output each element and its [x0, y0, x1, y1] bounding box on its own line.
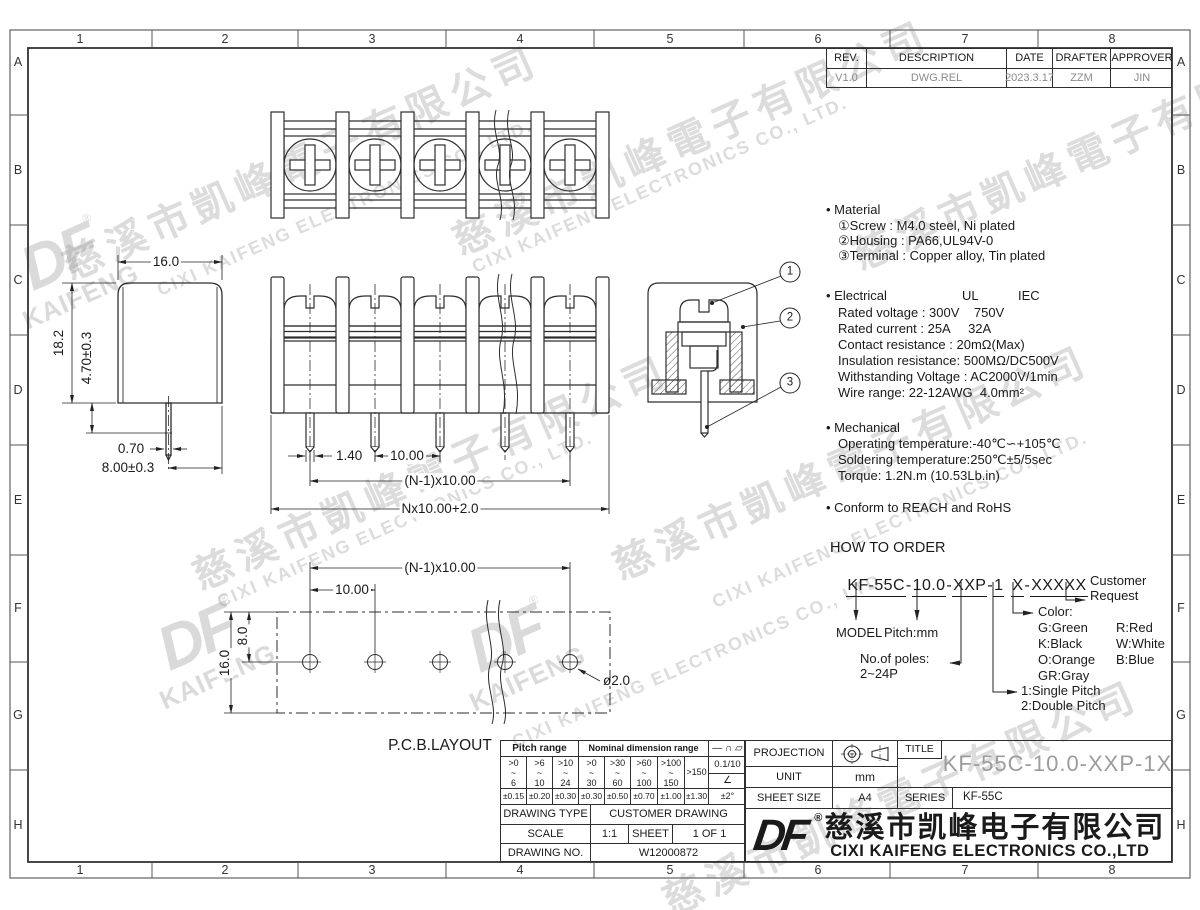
- order-label-double-pitch: 2:Double Pitch: [1021, 699, 1106, 714]
- dim-side-pin-length: 8.00±0.3: [102, 460, 154, 476]
- tolerance-value: ±0.30: [579, 789, 605, 805]
- tolerance-value: ±0.15: [501, 789, 527, 805]
- tolerance-angle-symbol: ∠: [709, 774, 746, 789]
- company-logo: DF: [751, 814, 808, 858]
- material-line: ③Terminal : Copper alloy, Tin plated: [838, 249, 1045, 264]
- tolerance-header-nominal: Nominal dimension range: [579, 741, 709, 757]
- tolerance-header-symbols: — ∩ ▱: [709, 741, 746, 757]
- revision-value: 2023.3.17: [1007, 69, 1053, 87]
- electrical-line: Insulation resistance: 500MΩ/DC500V: [838, 354, 1059, 369]
- grid-col-label: 4: [517, 32, 524, 46]
- dim-pcb-height: 16.0: [217, 648, 233, 678]
- drawing-no-label: DRAWING NO.: [501, 844, 591, 862]
- electrical-line: Rated current : 25A 32A: [838, 322, 991, 337]
- order-color-option: G:Green: [1038, 621, 1088, 636]
- grid-row-label: B: [14, 163, 22, 177]
- tolerance-flatness: 0.1/10: [709, 757, 746, 774]
- material-line: ①Screw : M4.0 steel, Ni plated: [838, 219, 1015, 234]
- grid-col-label: 2: [222, 863, 229, 877]
- projection-label: PROJECTION: [746, 741, 833, 767]
- grid-col-label: 8: [1109, 32, 1116, 46]
- dim-side-width: 16.0: [151, 254, 181, 270]
- grid-col-label: 1: [77, 32, 84, 46]
- dim-side-height: 18.2: [51, 330, 67, 356]
- tolerance-value: ±0.30: [553, 789, 579, 805]
- grid-col-label: 7: [962, 32, 969, 46]
- conform-note: • Conform to REACH and RoHS: [826, 501, 1011, 516]
- revision-header: APPROVER: [1111, 49, 1173, 69]
- electrical-line: Contact resistance : 20mΩ(Max): [838, 338, 1025, 353]
- order-label-poles-range: 2~24P: [860, 667, 898, 682]
- grid-row-label: G: [1176, 708, 1186, 722]
- grid-col-label: 3: [369, 32, 376, 46]
- company-name-en: CIXI KAIFENG ELECTRONICS CO.,LTD: [814, 843, 1165, 860]
- order-color-option: GR:Gray: [1038, 669, 1089, 684]
- unit-value: mm: [833, 767, 898, 788]
- revision-value: V1.0: [827, 69, 867, 87]
- tolerance-range: >6 ~ 10: [527, 757, 553, 789]
- tolerance-value: ±2°: [709, 789, 746, 805]
- projection-symbol-icon: [836, 743, 894, 765]
- tolerance-range: >100 ~ 150: [658, 757, 685, 789]
- revision-value: ZZM: [1053, 69, 1111, 87]
- drawing-type-label: DRAWING TYPE: [501, 805, 591, 825]
- electrical-title: • Electrical: [826, 289, 887, 304]
- drawing-title: KF-55C-10.0-XXP-1X: [943, 753, 1173, 775]
- mechanical-line: Torque: 1.2N.m (10.53Lb.in): [838, 469, 1000, 484]
- tolerance-range: >60 ~ 100: [631, 757, 658, 789]
- grid-col-label: 5: [667, 863, 674, 877]
- electrical-col-iec: IEC: [1018, 289, 1040, 304]
- revision-header: REV.: [827, 49, 867, 69]
- scale-label: SCALE: [501, 825, 591, 844]
- grid-col-label: 8: [1109, 863, 1116, 877]
- dim-pcb-hole: ø2.0: [603, 673, 630, 689]
- order-color-option: W:White: [1116, 637, 1165, 652]
- grid-row-label: A: [14, 55, 22, 69]
- grid-row-label: D: [13, 383, 22, 397]
- material-line: ②Housing : PA66,UL94V-0: [838, 234, 993, 249]
- revision-header: DATE: [1007, 49, 1053, 69]
- grid-row-label: C: [13, 273, 22, 287]
- grid-row-label: A: [1177, 55, 1185, 69]
- tolerance-range: >10 ~ 24: [553, 757, 579, 789]
- order-label-request: Request: [1090, 589, 1138, 604]
- title-value: KF-55C-10.0-XXP-1X: [942, 741, 1173, 788]
- tolerance-range: >0 ~ 30: [579, 757, 605, 789]
- title-label: TITLE: [898, 741, 942, 759]
- order-label-customer: Customer: [1090, 574, 1146, 589]
- grid-col-label: 2: [222, 32, 229, 46]
- tolerance-value: ±1.00: [658, 789, 685, 805]
- grid-row-label: B: [1177, 163, 1185, 177]
- electrical-col-ul: UL: [962, 289, 979, 304]
- grid-row-label: C: [1176, 273, 1185, 287]
- scale-value: 1:1: [591, 825, 629, 844]
- order-label-pitch: Pitch:mm: [884, 626, 938, 641]
- tolerance-table: Pitch range Nominal dimension range — ∩ …: [500, 740, 745, 862]
- drawing-type-value: CUSTOMER DRAWING: [591, 805, 746, 825]
- revision-table: REV. DESCRIPTION DATE DRAFTER APPROVER V…: [826, 48, 1172, 88]
- callout-2: 2: [787, 311, 793, 324]
- order-code-model: KF-55C: [846, 577, 906, 597]
- grid-col-label: 6: [815, 863, 822, 877]
- order-color-option: R:Red: [1116, 621, 1153, 636]
- company-name-cn: 慈溪市凯峰电子有限公司: [824, 812, 1165, 844]
- order-code-poles: XXP: [952, 577, 987, 597]
- grid-col-label: 1: [77, 863, 84, 877]
- dim-front-pin-width: 1.40: [336, 448, 362, 464]
- series-value: KF-55C: [953, 788, 1173, 809]
- revision-header: DRAFTER: [1053, 49, 1111, 69]
- dim-front-span: (N-1)x10.00: [402, 473, 477, 489]
- title-filler: [898, 759, 942, 788]
- grid-row-label: E: [1177, 493, 1185, 507]
- dim-side-pin-offset: 4.70±0.3: [79, 332, 95, 384]
- sheet-label: SHEET: [629, 825, 673, 844]
- dim-front-pitch: 10.00: [388, 448, 426, 464]
- callout-3: 3: [787, 376, 793, 389]
- grid-col-label: 4: [517, 863, 524, 877]
- sheet-value: 1 OF 1: [673, 825, 746, 844]
- tolerance-range: >30 ~ 60: [605, 757, 631, 789]
- grid-row-label: H: [13, 818, 22, 832]
- projection-symbol-cell: [833, 741, 898, 767]
- sheet-size-value: A4: [833, 788, 898, 809]
- dim-pcb-pitch: 10.00: [333, 582, 371, 598]
- grid-col-label: 3: [369, 863, 376, 877]
- order-color-option: B:Blue: [1116, 653, 1154, 668]
- tolerance-value: ±0.70: [631, 789, 658, 805]
- revision-value: JIN: [1111, 69, 1173, 87]
- electrical-line: Wire range: 22-12AWG 4.0mm²: [838, 386, 1024, 401]
- revision-value: DWG.REL: [867, 69, 1007, 87]
- grid-col-label: 5: [667, 32, 674, 46]
- grid-col-label: 7: [962, 863, 969, 877]
- tolerance-range: >0 ~ 6: [501, 757, 527, 789]
- grid-row-label: G: [13, 708, 23, 722]
- sheet-size-label: SHEET SIZE: [746, 788, 833, 809]
- tolerance-value: ±0.20: [527, 789, 553, 805]
- title-block: PROJECTION TITLE KF-55C-10.0-XXP-1X UNIT…: [745, 740, 1172, 862]
- mechanical-line: Operating temperature:-40℃∽+105℃: [838, 437, 1061, 452]
- order-color-option: K:Black: [1038, 637, 1082, 652]
- drawing-no-value: W12000872: [591, 844, 746, 862]
- order-code-pitch: 10.0: [912, 577, 947, 597]
- callout-1: 1: [787, 265, 793, 278]
- tolerance-header-pitch: Pitch range: [501, 741, 579, 757]
- unit-label: UNIT: [746, 767, 833, 788]
- order-code-custom: XXXXX: [1030, 577, 1087, 597]
- drawing-sheet: DF® KAIFENG DF® KAIFENG DF® KAIFENG 慈溪市凱…: [0, 0, 1200, 910]
- material-title: • Material: [826, 203, 880, 218]
- revision-header: DESCRIPTION: [867, 49, 1007, 69]
- order-label-model: MODEL: [836, 626, 882, 641]
- grid-row-label: E: [14, 493, 22, 507]
- registered-mark: ®: [814, 812, 824, 824]
- grid-row-label: F: [14, 601, 22, 615]
- order-code-pitchtype: 1: [993, 577, 1004, 597]
- how-to-order-title: HOW TO ORDER: [830, 540, 945, 557]
- order-label-poles: No.of poles:: [860, 652, 929, 667]
- order-label-color: Color:: [1038, 605, 1073, 620]
- dim-pcb-row: 8.0: [235, 625, 251, 648]
- pcb-layout-label: P.C.B.LAYOUT: [388, 737, 492, 755]
- electrical-line: Withstanding Voltage : AC2000V/1min: [838, 370, 1058, 385]
- grid-row-label: D: [1176, 383, 1185, 397]
- mechanical-line: Soldering temperature:250℃±5/5sec: [838, 453, 1052, 468]
- dim-front-total: Nx10.00+2.0: [400, 501, 481, 517]
- tolerance-range: >150: [685, 757, 709, 789]
- series-label: SERIES: [898, 788, 953, 809]
- dim-side-pin-width: 0.70: [118, 441, 144, 457]
- electrical-line: Rated voltage : 300V 750V: [838, 306, 1004, 321]
- order-color-option: O:Orange: [1038, 653, 1095, 668]
- grid-col-label: 6: [815, 32, 822, 46]
- order-code-color: X: [1011, 577, 1024, 597]
- mechanical-title: • Mechanical: [826, 421, 900, 436]
- grid-row-label: F: [1177, 601, 1185, 615]
- dim-pcb-span: (N-1)x10.00: [402, 560, 477, 576]
- company-area: DF ®慈溪市凯峰电子有限公司 CIXI KAIFENG ELECTRONICS…: [746, 809, 1173, 863]
- tolerance-value: ±1.30: [685, 789, 709, 805]
- order-label-single-pitch: 1:Single Pitch: [1021, 684, 1101, 699]
- grid-row-label: H: [1176, 818, 1185, 832]
- tolerance-value: ±0.50: [605, 789, 631, 805]
